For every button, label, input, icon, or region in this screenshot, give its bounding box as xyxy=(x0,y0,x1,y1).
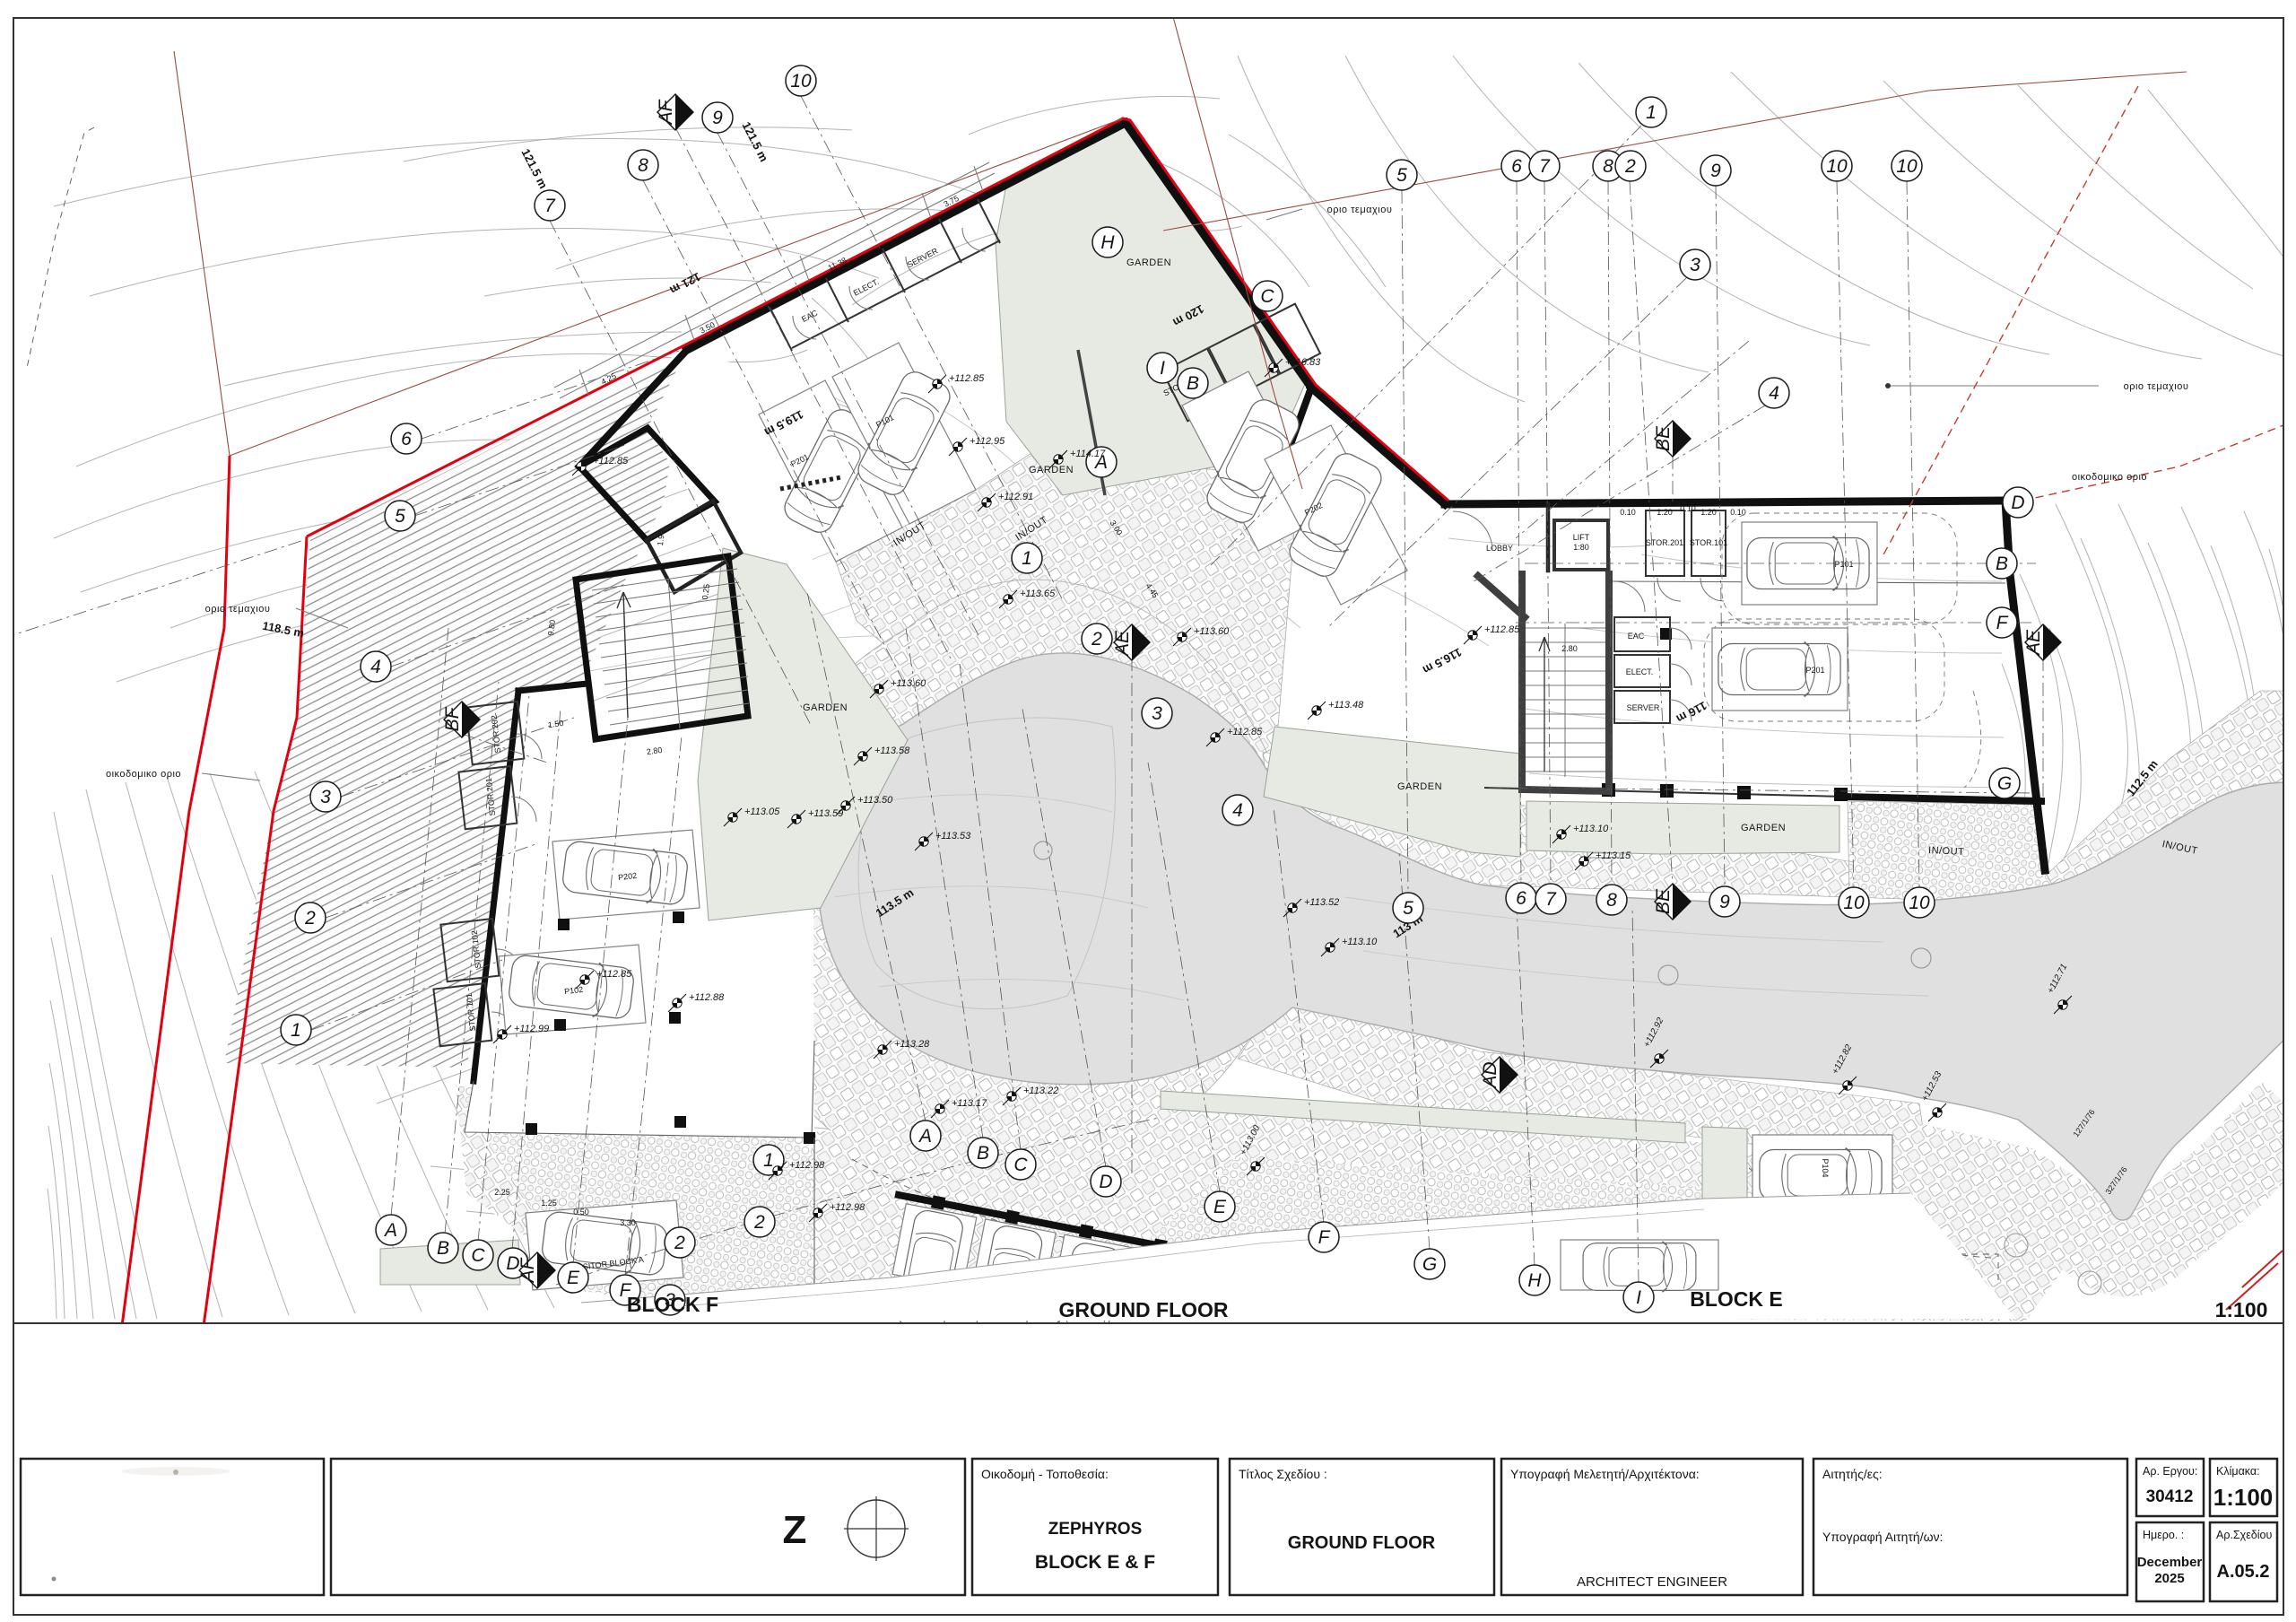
svg-text:BF: BF xyxy=(442,706,463,731)
svg-text:ELECT.: ELECT. xyxy=(1626,667,1654,676)
svg-text:B: B xyxy=(1996,554,2008,574)
svg-text:H: H xyxy=(1527,1270,1542,1291)
svg-text:10: 10 xyxy=(790,71,812,92)
svg-text:2: 2 xyxy=(753,1212,765,1233)
svg-text:P104: P104 xyxy=(1821,1158,1830,1177)
svg-text:H: H xyxy=(1100,232,1115,253)
svg-text:4: 4 xyxy=(1232,800,1243,821)
svg-text:P101: P101 xyxy=(1834,560,1853,569)
svg-text:ARCHITECT ENGINEER: ARCHITECT ENGINEER xyxy=(1577,1574,1727,1590)
svg-text:BLOCK E & F: BLOCK E & F xyxy=(1035,1552,1155,1573)
svg-text:2.25: 2.25 xyxy=(494,1188,510,1197)
svg-text:C: C xyxy=(471,1245,485,1266)
svg-text:οικοδομικο οριο: οικοδομικο οριο xyxy=(2072,472,2147,483)
svg-text:0.10: 0.10 xyxy=(1680,504,1696,513)
svg-text:Κλίμακα:: Κλίμακα: xyxy=(2216,1465,2260,1478)
svg-text:4: 4 xyxy=(1769,383,1779,404)
svg-text:BE: BE xyxy=(1653,888,1674,914)
svg-text:IN/OUT: IN/OUT xyxy=(1928,845,1965,858)
svg-text:5: 5 xyxy=(395,506,405,527)
svg-text:1: 1 xyxy=(1022,548,1032,569)
svg-text:0.25: 0.25 xyxy=(700,583,711,600)
svg-text:GARDEN: GARDEN xyxy=(1126,257,1171,268)
svg-text:+112.85: +112.85 xyxy=(1227,727,1263,737)
svg-text:0.10: 0.10 xyxy=(1730,508,1746,517)
svg-text:6: 6 xyxy=(1516,888,1526,909)
svg-text:οικοδομικο οριο: οικοδομικο οριο xyxy=(106,769,181,780)
svg-text:+113.58: +113.58 xyxy=(874,746,910,756)
svg-text:B: B xyxy=(437,1238,449,1259)
svg-text:7: 7 xyxy=(1545,889,1557,910)
svg-text:5: 5 xyxy=(1396,165,1407,186)
svg-text:+113.52: +113.52 xyxy=(1304,897,1339,908)
svg-text:A: A xyxy=(383,1220,397,1241)
svg-text:7: 7 xyxy=(1539,156,1551,177)
svg-text:3: 3 xyxy=(1152,703,1162,724)
svg-text:6: 6 xyxy=(1511,156,1522,177)
svg-text:2: 2 xyxy=(1091,629,1102,650)
svg-text:οριο τεμαχιου: οριο τεμαχιου xyxy=(2124,381,2189,392)
svg-text:+112.98: +112.98 xyxy=(789,1160,825,1171)
svg-text:9: 9 xyxy=(712,108,723,128)
svg-text:+112.91: +112.91 xyxy=(998,492,1033,502)
svg-text:+113.53: +113.53 xyxy=(935,831,971,842)
svg-text:E: E xyxy=(567,1268,580,1288)
svg-text:C: C xyxy=(1013,1155,1028,1175)
svg-text:10: 10 xyxy=(1843,893,1865,913)
svg-text:οριο τεμαχιου: οριο τεμαχιου xyxy=(205,604,271,615)
svg-text:+113.22: +113.22 xyxy=(1023,1086,1058,1096)
svg-text:+113.15: +113.15 xyxy=(1596,850,1631,861)
svg-text:2025: 2025 xyxy=(2154,1571,2184,1586)
svg-text:30412: 30412 xyxy=(2146,1487,2194,1506)
svg-text:1:100: 1:100 xyxy=(2213,1484,2274,1511)
svg-text:5: 5 xyxy=(1403,898,1413,919)
svg-text:+113.60: +113.60 xyxy=(1194,626,1230,637)
svg-text:A.05.2: A.05.2 xyxy=(2217,1562,2270,1582)
svg-text:B: B xyxy=(1187,373,1199,394)
svg-text:+113.05: +113.05 xyxy=(744,807,780,817)
svg-text:9.80: 9.80 xyxy=(546,619,557,636)
svg-text:9: 9 xyxy=(1719,892,1730,912)
svg-text:BE: BE xyxy=(1653,425,1674,451)
svg-text:+113.10: +113.10 xyxy=(1342,937,1378,947)
svg-text:+112.85: +112.85 xyxy=(949,373,985,384)
svg-text:10: 10 xyxy=(1909,893,1930,913)
svg-text:+113.28: +113.28 xyxy=(894,1039,930,1050)
svg-text:AE: AE xyxy=(1112,630,1133,658)
svg-text:AE: AE xyxy=(2023,629,2044,657)
svg-text:+116.83: +116.83 xyxy=(1285,357,1321,368)
svg-text:F: F xyxy=(1996,613,2009,633)
svg-text:GARDEN: GARDEN xyxy=(1397,781,1442,792)
svg-text:3: 3 xyxy=(1690,255,1700,275)
svg-text:G: G xyxy=(1422,1254,1437,1275)
svg-text:B: B xyxy=(977,1143,989,1164)
svg-text:Οικοδομή - Τοποθεσία:: Οικοδομή - Τοποθεσία: xyxy=(981,1467,1109,1481)
svg-text:7: 7 xyxy=(544,196,556,216)
svg-text:8: 8 xyxy=(1603,156,1613,177)
svg-text:Τίτλος Σχεδίου :: Τίτλος Σχεδίου : xyxy=(1239,1467,1327,1481)
svg-text:4: 4 xyxy=(370,657,381,677)
svg-text:+112.95: +112.95 xyxy=(970,436,1005,447)
svg-text:+113.60: +113.60 xyxy=(891,678,926,689)
svg-text:+112.88: +112.88 xyxy=(689,992,725,1003)
svg-text:9: 9 xyxy=(1710,161,1721,181)
svg-text:1:100: 1:100 xyxy=(2215,1298,2268,1321)
svg-text:F: F xyxy=(1318,1227,1331,1248)
svg-text:+113.65: +113.65 xyxy=(1020,589,1056,599)
svg-text:2: 2 xyxy=(304,908,316,929)
svg-text:AD: AD xyxy=(1480,1061,1500,1089)
svg-text:I: I xyxy=(1160,358,1165,379)
svg-text:Αιτητής/ες:: Αιτητής/ες: xyxy=(1822,1467,1883,1481)
svg-text:3: 3 xyxy=(320,787,331,807)
svg-text:1:80: 1:80 xyxy=(1573,543,1589,552)
svg-text:LIFT: LIFT xyxy=(1573,533,1590,542)
svg-text:GROUND FLOOR: GROUND FLOOR xyxy=(1288,1533,1436,1553)
svg-text:Αρ. Εργου:: Αρ. Εργου: xyxy=(2143,1465,2197,1478)
svg-text:+113.48: +113.48 xyxy=(1328,700,1364,711)
svg-text:I: I xyxy=(1636,1287,1641,1308)
svg-text:+112.85: +112.85 xyxy=(593,456,629,467)
svg-text:1.25: 1.25 xyxy=(541,1199,557,1208)
svg-text:D: D xyxy=(1099,1172,1112,1192)
svg-text:1.20: 1.20 xyxy=(1657,508,1673,517)
svg-text:Υπογραφή Μελετητή/Αρχιτέκτονα:: Υπογραφή Μελετητή/Αρχιτέκτονα: xyxy=(1510,1467,1700,1481)
svg-text:10: 10 xyxy=(1896,156,1918,177)
svg-text:8: 8 xyxy=(638,155,648,176)
svg-text:2.80: 2.80 xyxy=(1561,644,1578,653)
svg-text:+112.99: +112.99 xyxy=(514,1024,549,1034)
svg-text:6: 6 xyxy=(401,429,412,449)
svg-text:C: C xyxy=(1260,286,1274,307)
svg-text:1.20: 1.20 xyxy=(1700,508,1717,517)
svg-text:Αρ.Σχεδίου :: Αρ.Σχεδίου : xyxy=(2216,1529,2278,1541)
svg-text:10: 10 xyxy=(1826,156,1848,177)
svg-text:8: 8 xyxy=(1606,890,1617,911)
svg-text:1.90: 1.90 xyxy=(656,529,666,546)
svg-text:D: D xyxy=(2011,493,2024,513)
svg-text:AF: AF xyxy=(517,1257,538,1284)
svg-text:0.10: 0.10 xyxy=(1620,508,1636,517)
svg-text:1: 1 xyxy=(291,1020,301,1041)
svg-text:+113.50: +113.50 xyxy=(857,795,893,806)
svg-text:+112.85: +112.85 xyxy=(596,969,632,980)
svg-text:οριο τεμαχιου: οριο τεμαχιου xyxy=(1327,205,1393,215)
svg-text:+113.10: +113.10 xyxy=(1573,824,1609,834)
svg-text:GARDEN: GARDEN xyxy=(803,702,848,713)
svg-text:A: A xyxy=(918,1126,932,1147)
svg-text:P201: P201 xyxy=(1805,666,1824,675)
svg-text:E: E xyxy=(1213,1197,1227,1217)
svg-text:December: December xyxy=(2137,1555,2203,1570)
svg-text:GROUND FLOOR: GROUND FLOOR xyxy=(1058,1298,1228,1321)
svg-text:Z: Z xyxy=(783,1508,807,1552)
svg-text:1: 1 xyxy=(763,1150,774,1171)
svg-text:3.30: 3.30 xyxy=(620,1218,636,1227)
svg-text:LOBBY: LOBBY xyxy=(1486,544,1513,553)
svg-text:SERVER: SERVER xyxy=(1627,703,1660,712)
svg-text:+113.17: +113.17 xyxy=(952,1098,987,1109)
svg-text:AF: AF xyxy=(656,99,676,126)
svg-text:EAC: EAC xyxy=(1628,632,1645,641)
svg-text:2: 2 xyxy=(1624,156,1636,177)
svg-text:Υπογραφή Αιτητή/ων:: Υπογραφή Αιτητή/ων: xyxy=(1822,1530,1943,1544)
svg-text:+114.17: +114.17 xyxy=(1070,449,1106,459)
svg-text:2: 2 xyxy=(674,1233,685,1253)
svg-text:BLOCK E: BLOCK E xyxy=(1690,1287,1783,1311)
svg-text:Ημερο. :: Ημερο. : xyxy=(2143,1529,2184,1541)
svg-text:+112.85: +112.85 xyxy=(1484,624,1520,635)
svg-text:+112.98: +112.98 xyxy=(830,1202,865,1213)
svg-text:G: G xyxy=(1997,773,2012,794)
svg-text:ZEPHYROS: ZEPHYROS xyxy=(1048,1520,1143,1539)
svg-text:GARDEN: GARDEN xyxy=(1741,823,1786,833)
svg-text:1: 1 xyxy=(1646,102,1657,123)
svg-text:0.50: 0.50 xyxy=(573,1208,589,1216)
svg-text:BLOCK F: BLOCK F xyxy=(627,1293,718,1316)
